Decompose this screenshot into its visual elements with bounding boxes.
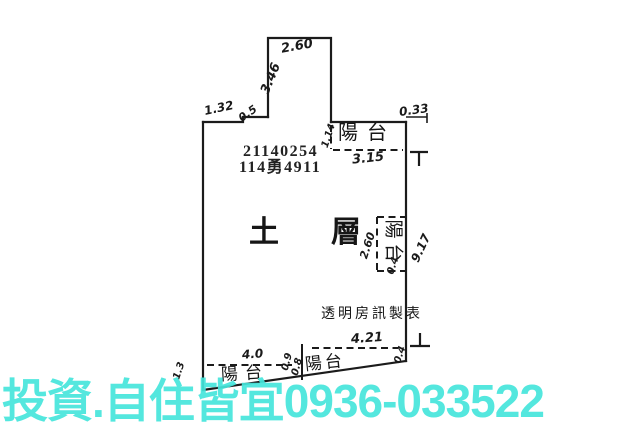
dim-bottom-left-width: 4.0 [242, 347, 264, 360]
watermark-text: 投資.自住皆宜0936-033522 [2, 377, 640, 425]
maker-label: 透明房訊製表 [321, 307, 423, 321]
lot-number: 114勇4911 [239, 160, 321, 176]
dim-bottom-right-width: 4.21 [351, 331, 384, 346]
registry-number: 21140254 [243, 144, 318, 160]
floorplan-scan: 2.60 3.46 1.32 0.5 0.33 陽台 1.14 3.15 211… [0, 0, 640, 442]
balcony-label-top: 陽台 [338, 122, 396, 142]
dim-top-balcony-width: 3.15 [351, 150, 384, 166]
balcony-label-bottom-mid: 陽台 [304, 353, 346, 374]
